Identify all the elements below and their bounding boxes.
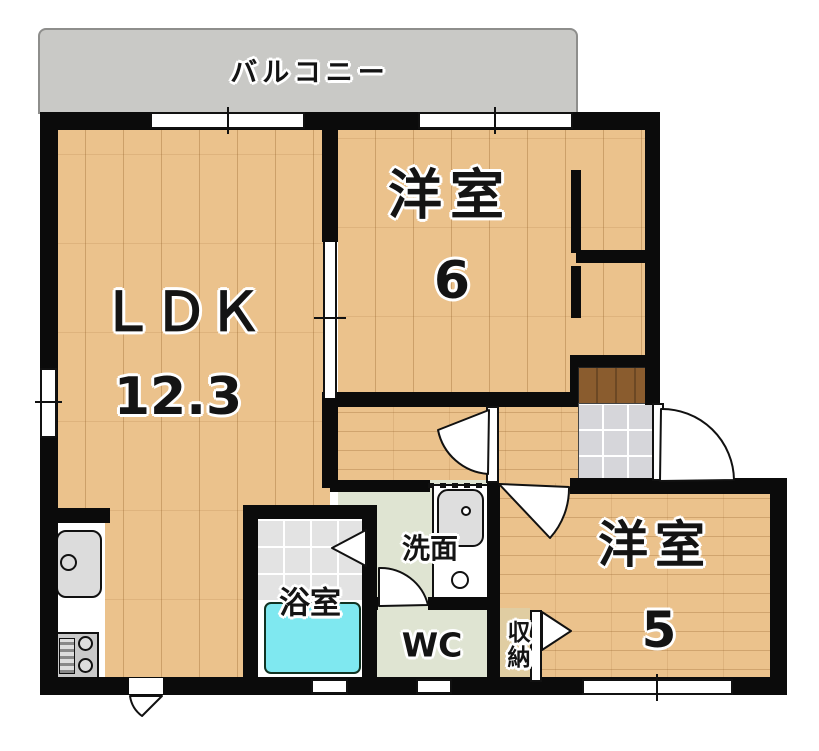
ldk-size-label: 12.3 — [114, 367, 242, 427]
front-door-swing — [660, 409, 734, 481]
bath-folding-door — [332, 530, 366, 566]
western5-size-label: 5 — [642, 601, 677, 659]
washroom-label: 洗面 — [402, 527, 458, 567]
storage-label: 収納 — [499, 620, 533, 670]
western5-label: 洋室 — [598, 505, 712, 577]
western5-door-swing — [499, 484, 569, 538]
western6-label: 洋室 — [388, 151, 512, 230]
wc-door-swing — [379, 568, 428, 606]
kitchen-door-swing — [130, 696, 162, 716]
floorplan-canvas: バルコニー ＬＤＫ 12.3 洋室 6 洋室 5 浴室 洗面 WC 収納 — [0, 0, 819, 751]
bath-label: 浴室 — [279, 578, 341, 623]
balcony-label: バルコニー — [230, 51, 389, 90]
wc-label: WC — [402, 626, 463, 665]
ldk-door-swing — [438, 410, 489, 474]
storage-door-swing — [542, 612, 571, 650]
western6-size-label: 6 — [434, 251, 470, 311]
ldk-label: ＬＤＫ — [100, 268, 262, 347]
